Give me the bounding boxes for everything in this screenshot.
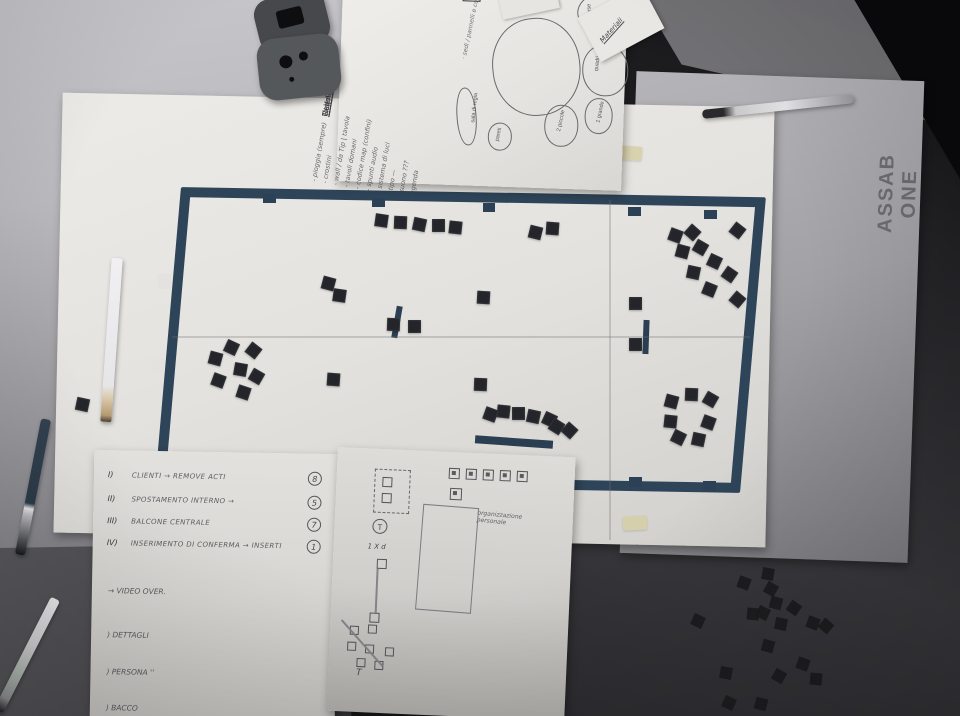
loose-chip [769,596,784,611]
loose-chip [721,695,737,711]
loose-chip [786,600,803,617]
loose-chip [771,668,787,684]
pencil-sharpener-front [255,32,343,102]
sharpener-hole [275,5,305,29]
loose-chip [761,639,776,654]
photo-scene: ASSAB ONE Titolo Calendario Regole - pio… [0,0,960,716]
loose-chip [690,613,706,629]
floor-chips-layer [0,0,960,716]
loose-chip [754,697,769,712]
loose-chip [761,567,775,581]
sharpener-hole-small [298,51,308,61]
sharpener-hole-large [279,55,293,69]
loose-chip [805,615,820,630]
loose-chip [809,672,822,685]
loose-chip [719,666,733,680]
loose-chip [795,656,810,671]
sharpener-hole-dot [289,77,294,82]
loose-chip [774,617,788,631]
loose-chip [736,575,751,590]
